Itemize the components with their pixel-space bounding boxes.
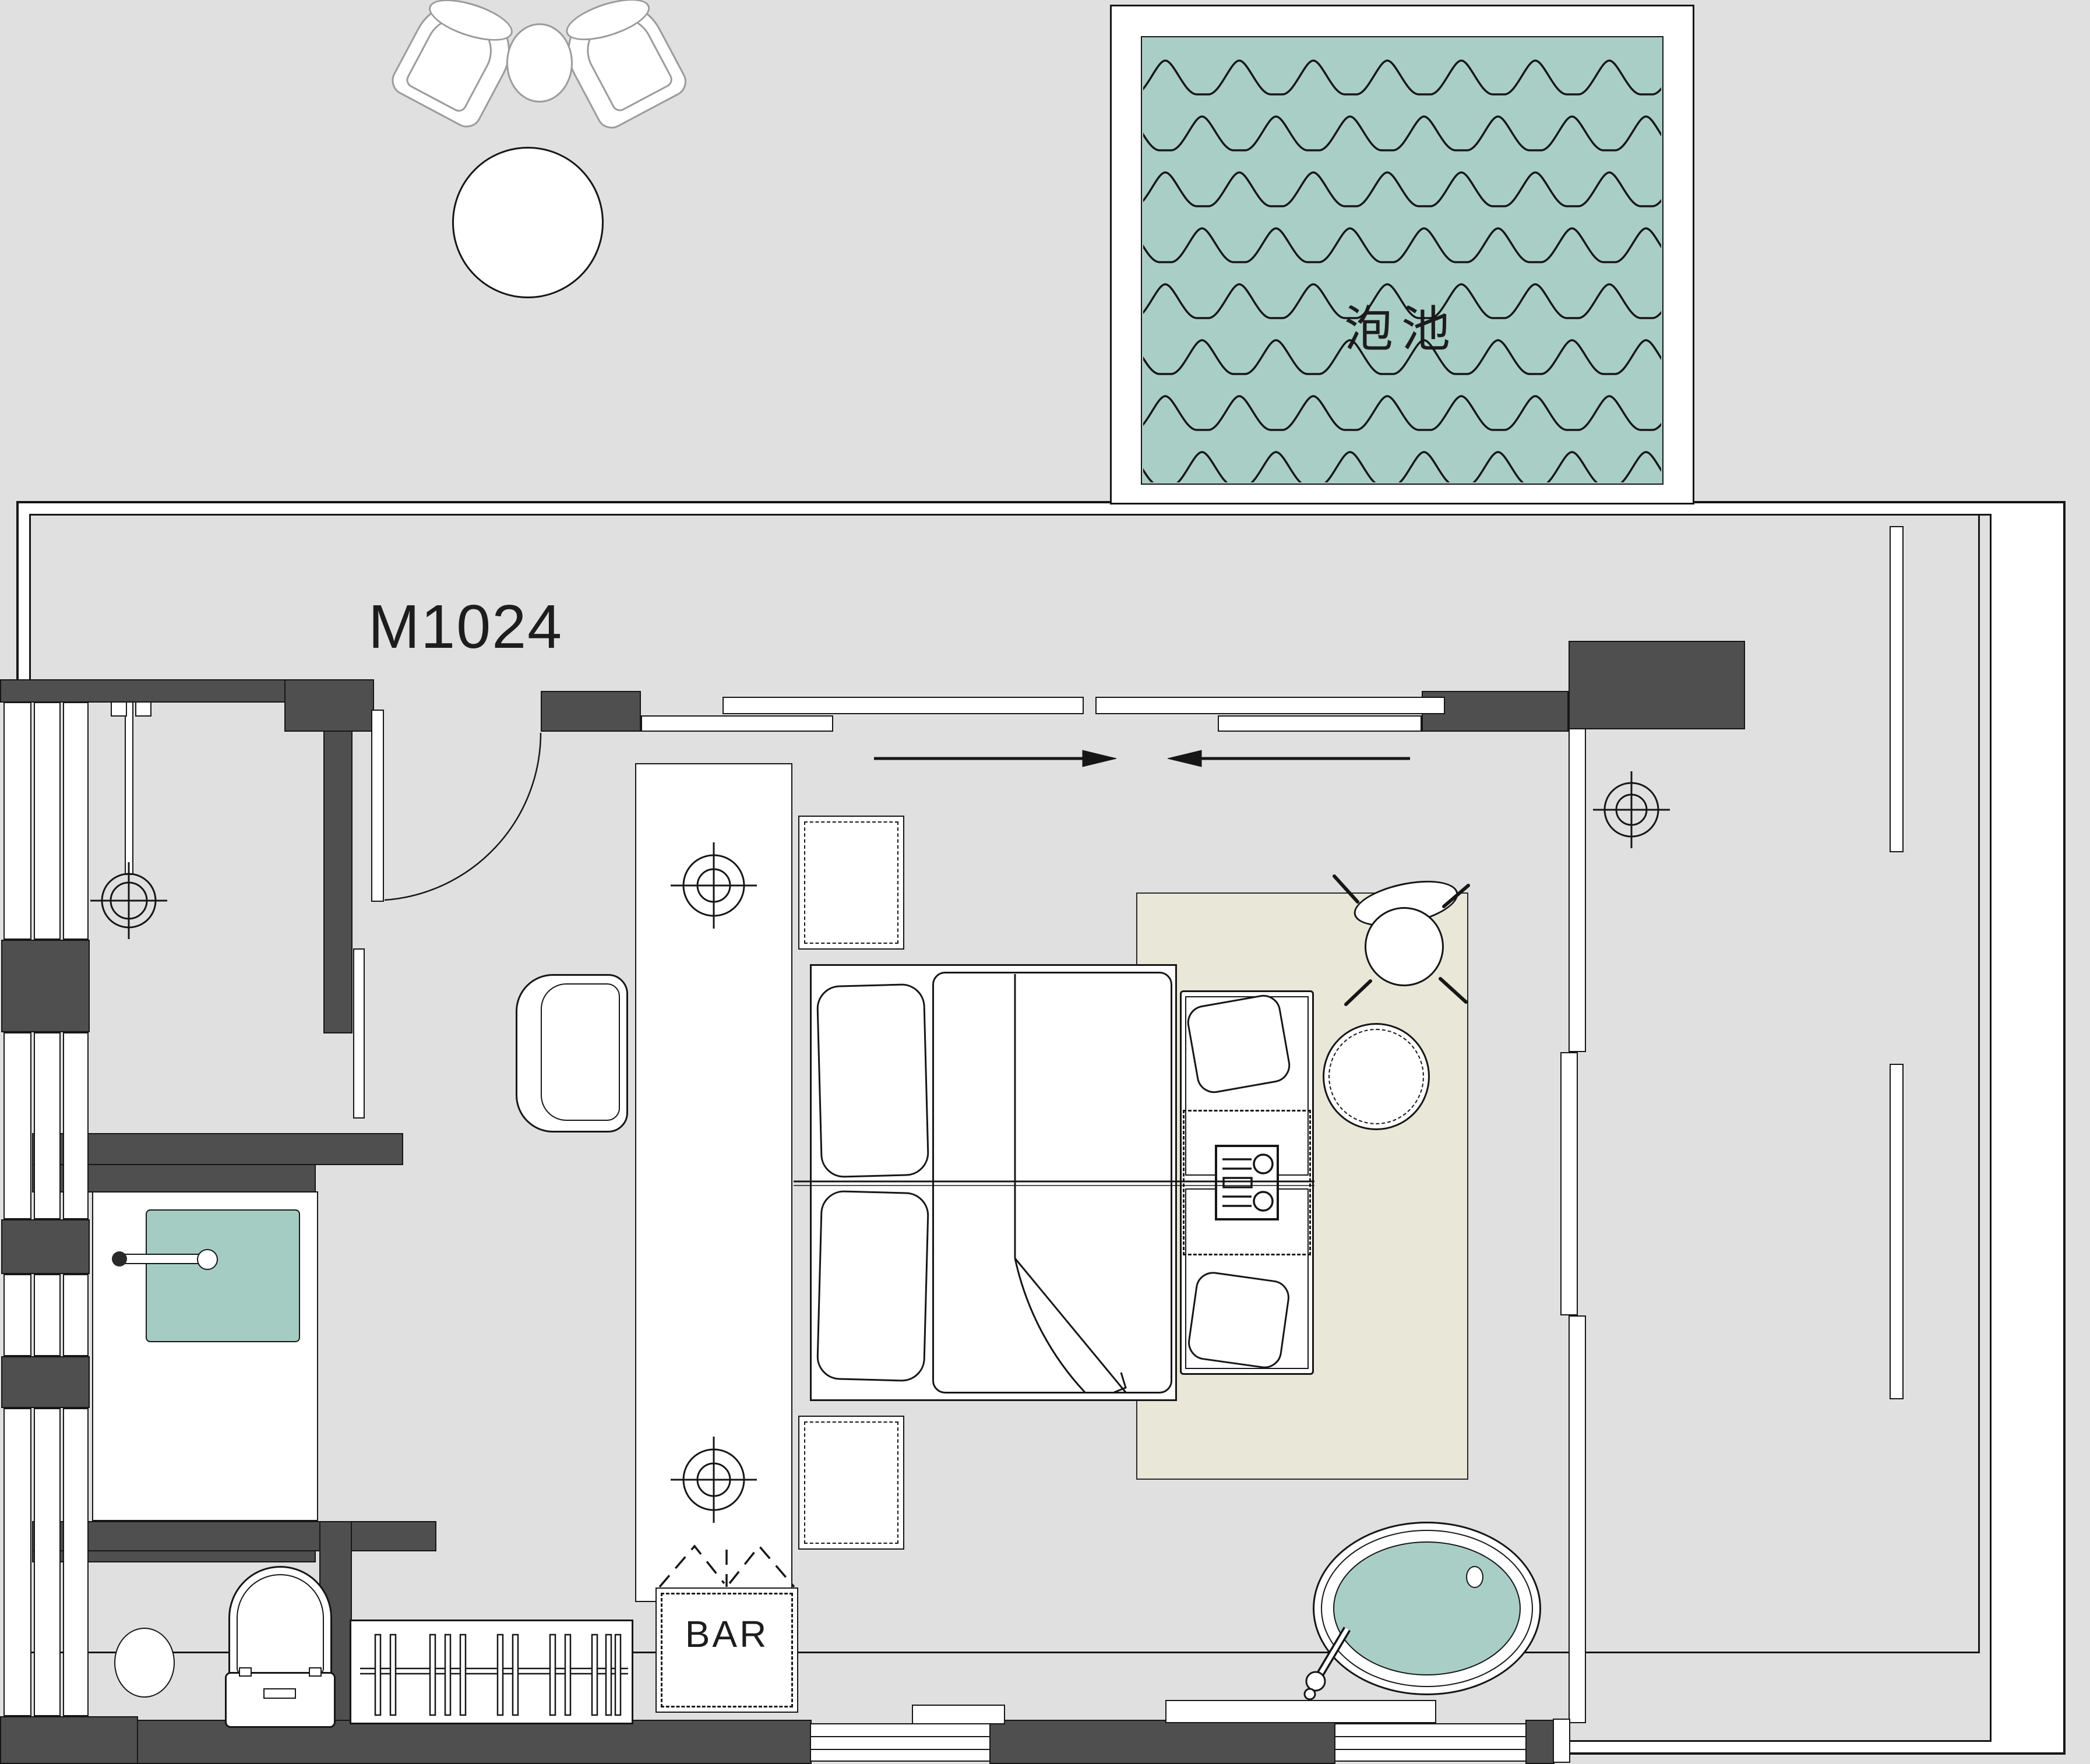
toilet-flush-button: [263, 1688, 296, 1699]
window-wall-segment: [1560, 1052, 1578, 1315]
vanity-sink: [146, 1209, 300, 1342]
ottoman-table: [1323, 1023, 1430, 1130]
shower-valve: [135, 701, 151, 717]
vanity-faucet-lever: [112, 1251, 127, 1266]
wall-bottom-right: [1525, 1720, 1555, 1764]
door-threshold: [912, 1705, 1005, 1724]
louver-window-strip: [63, 1274, 89, 1356]
desk-chair-seat: [541, 983, 620, 1121]
bathroom-mirror: [353, 948, 365, 1119]
louver-window-strip: [34, 1032, 61, 1219]
toilet-tank: [225, 1672, 336, 1728]
vanity-faucet-bar: [119, 1254, 207, 1264]
terrace-planter-slat: [1890, 1064, 1904, 1399]
bench-pillow: [1186, 1269, 1292, 1370]
tea-tray-icon: [1215, 1145, 1279, 1220]
lounge-chair-seat: [1365, 907, 1444, 986]
sliding-door-rail-left: [641, 715, 833, 732]
wall-bottom-left-corner: [0, 1716, 138, 1764]
nightstand-outline: [804, 821, 898, 944]
room-number-label: M1024: [368, 592, 563, 662]
bathtub-water: [1333, 1541, 1521, 1675]
bed-pillow: [816, 1190, 929, 1382]
louver-window-strip: [3, 1032, 31, 1219]
louver-window-strip: [63, 702, 89, 940]
louver-window-strip: [34, 702, 61, 940]
window-sill: [1, 1356, 90, 1408]
bath-stool: [114, 1628, 175, 1698]
nightstand-top: [798, 816, 904, 950]
vanity-faucet-knob: [197, 1249, 218, 1270]
window-wall-segment: [1569, 728, 1586, 1052]
window-wall-end-cap: [1553, 1719, 1570, 1763]
wardrobe: [350, 1620, 633, 1724]
louver-window-strip: [3, 702, 31, 940]
sliding-door-panel-left: [722, 697, 1084, 714]
toilet-seat-hinge: [239, 1667, 252, 1677]
pool-label: 泡池: [1285, 290, 1518, 361]
bar-label: BAR: [655, 1613, 798, 1656]
door-threshold: [1165, 1700, 1436, 1723]
window-sill: [1, 1219, 90, 1274]
terrace-round-table: [452, 147, 604, 298]
bed-duvet: [932, 972, 1172, 1393]
entry-steps: [810, 1723, 991, 1762]
wall-bottom-mid: [989, 1720, 1335, 1764]
floor-plan: 泡池 M1024: [0, 0, 2090, 1764]
wall-bath-partition: [323, 731, 353, 1033]
nightstand-bottom: [798, 1416, 904, 1550]
sliding-door-rail-right: [1218, 715, 1422, 732]
wall-wc-top-a: [32, 1521, 436, 1551]
louver-window-strip: [3, 1408, 31, 1716]
wall-bath-top-block: [284, 679, 374, 732]
wall-bath-top-band: [0, 679, 286, 703]
louver-window-strip: [3, 1274, 31, 1356]
louver-window-strip: [34, 1274, 61, 1356]
window-wall-segment: [1569, 1315, 1586, 1723]
louver-window-strip: [63, 1408, 89, 1716]
louver-window-strip: [63, 1032, 89, 1219]
sliding-door-panel-right: [1095, 697, 1445, 714]
wall-door-pier: [541, 691, 641, 732]
toilet-seat-hinge: [309, 1667, 322, 1677]
ottoman-outline: [1328, 1029, 1424, 1124]
shower-valve: [111, 701, 127, 717]
terrace-side-table: [506, 23, 573, 103]
headboard-console: [635, 763, 792, 1602]
pool-water: [1141, 36, 1663, 485]
wall-corner-pier: [1569, 641, 1745, 729]
window-sill: [1, 940, 90, 1032]
bed-pillow: [816, 983, 930, 1179]
nightstand-outline: [804, 1421, 898, 1544]
desk-chair: [516, 974, 628, 1133]
entry-steps: [1334, 1723, 1527, 1762]
rain-shower-arm: [125, 703, 133, 875]
bench-pillow: [1185, 992, 1293, 1096]
entry-door-leaf: [371, 710, 384, 902]
toilet-bowl-inner: [237, 1574, 324, 1674]
terrace-planter-slat: [1890, 526, 1904, 852]
louver-window-strip: [34, 1408, 61, 1716]
bathtub-drain: [1466, 1566, 1483, 1588]
